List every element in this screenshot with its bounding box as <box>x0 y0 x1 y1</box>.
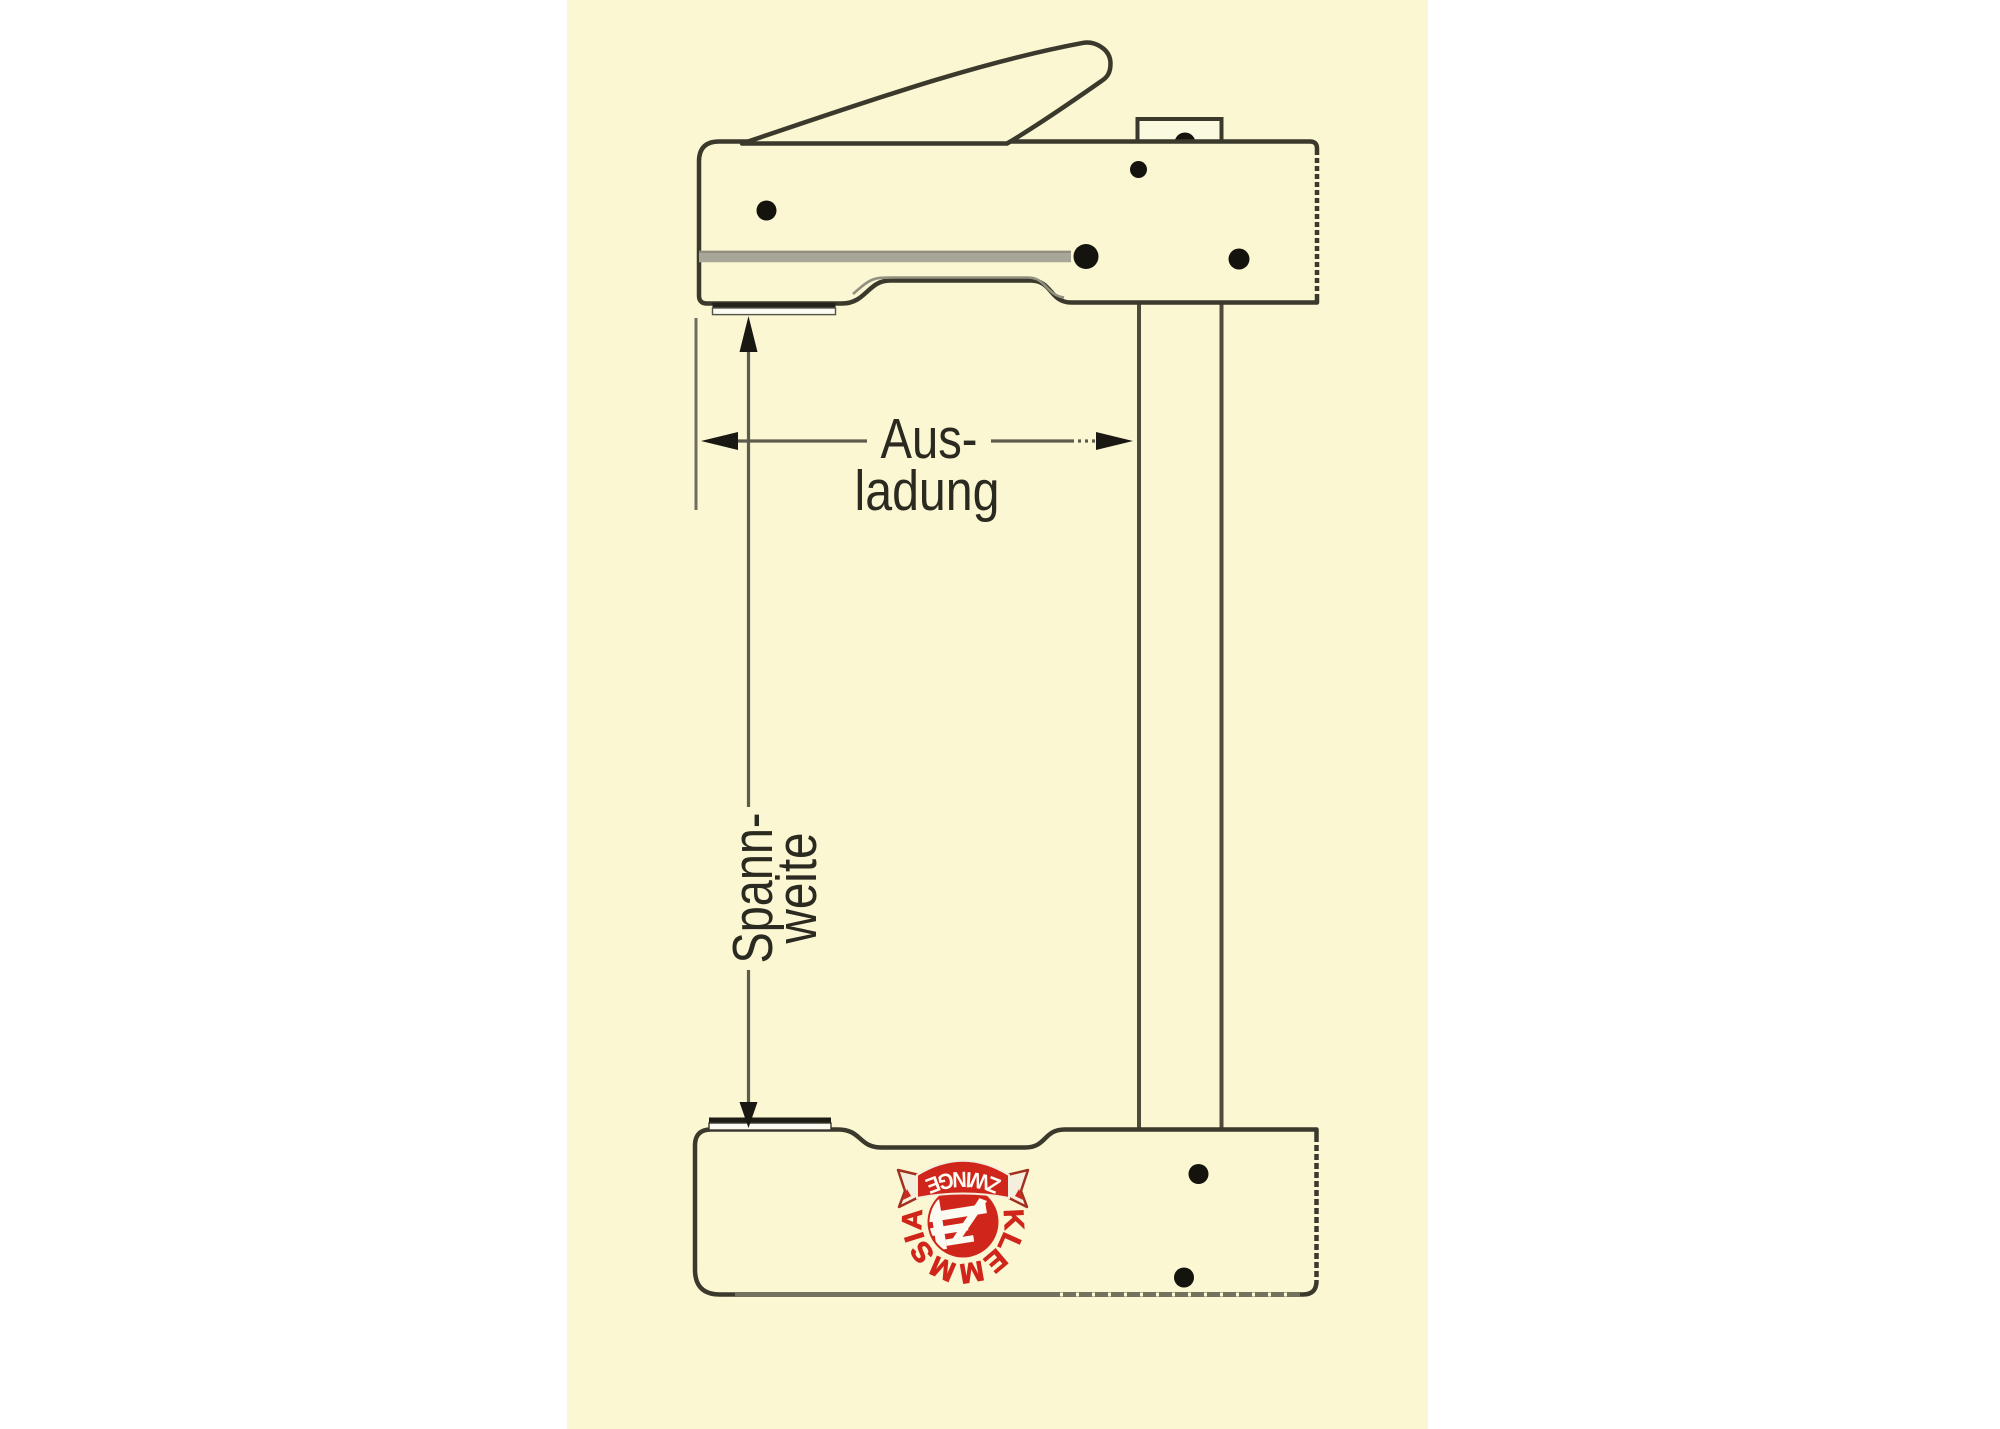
svg-text:weite: weite <box>765 833 829 945</box>
svg-text:ladung: ladung <box>855 459 1000 523</box>
